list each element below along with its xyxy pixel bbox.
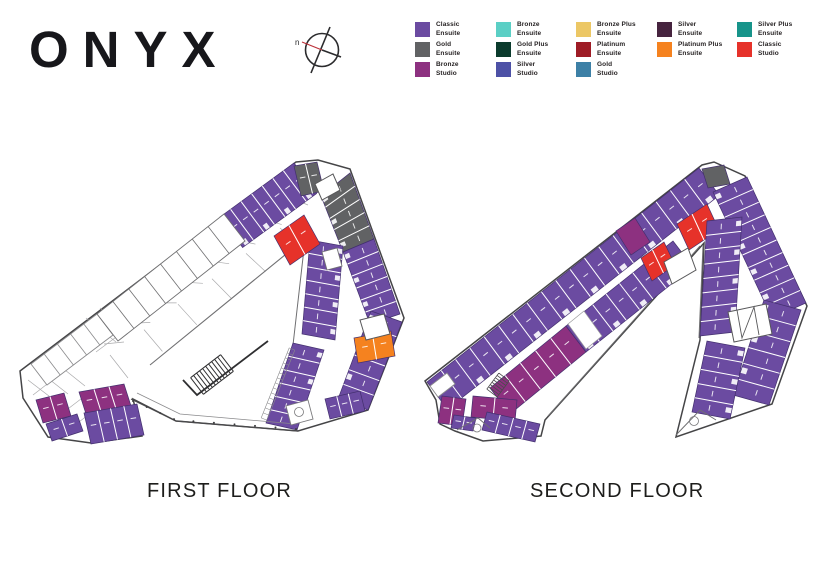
svg-text:n: n [295, 38, 299, 47]
